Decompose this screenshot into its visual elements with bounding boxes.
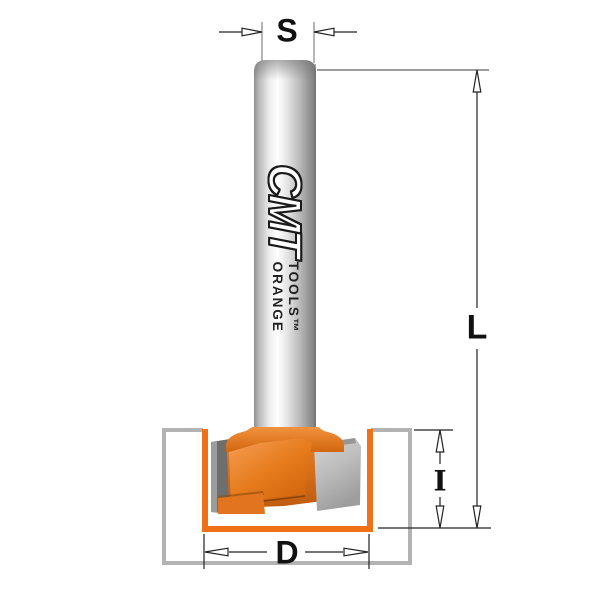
s-arrow-right-head xyxy=(314,28,334,36)
cmt-logo: CMT xyxy=(262,164,308,255)
brand-rotated-block: CMT TOOLS™ ORANGE xyxy=(254,160,316,338)
cutter-head xyxy=(211,427,361,514)
d-arrow-left-head xyxy=(205,548,228,556)
left-blade-edge-highlight xyxy=(211,441,217,513)
l-arrow-up-head xyxy=(473,70,481,92)
dim-label-cutting-diameter: D xyxy=(275,535,298,572)
i-arrow-down-head xyxy=(436,506,444,528)
brand-tagline: TOOLS™ ORANGE xyxy=(269,262,300,334)
shank-top-cap xyxy=(254,60,316,80)
s-arrow-left-head xyxy=(242,28,262,36)
dim-label-shank-diameter: S xyxy=(276,13,297,50)
dim-label-cutting-depth: I xyxy=(433,465,446,498)
i-arrow-up-head xyxy=(436,430,444,452)
brand-tagline-orange: ORANGE xyxy=(269,262,285,334)
brand-tagline-tools: TOOLS™ xyxy=(285,262,301,334)
dim-label-overall-length: L xyxy=(467,309,488,348)
diagram-canvas: S L I D CMT TOOLS™ ORANGE xyxy=(0,0,600,600)
l-arrow-down-head xyxy=(473,506,481,528)
d-arrow-right-head xyxy=(344,548,368,556)
shank-brand-text: CMT TOOLS™ ORANGE xyxy=(254,160,316,338)
